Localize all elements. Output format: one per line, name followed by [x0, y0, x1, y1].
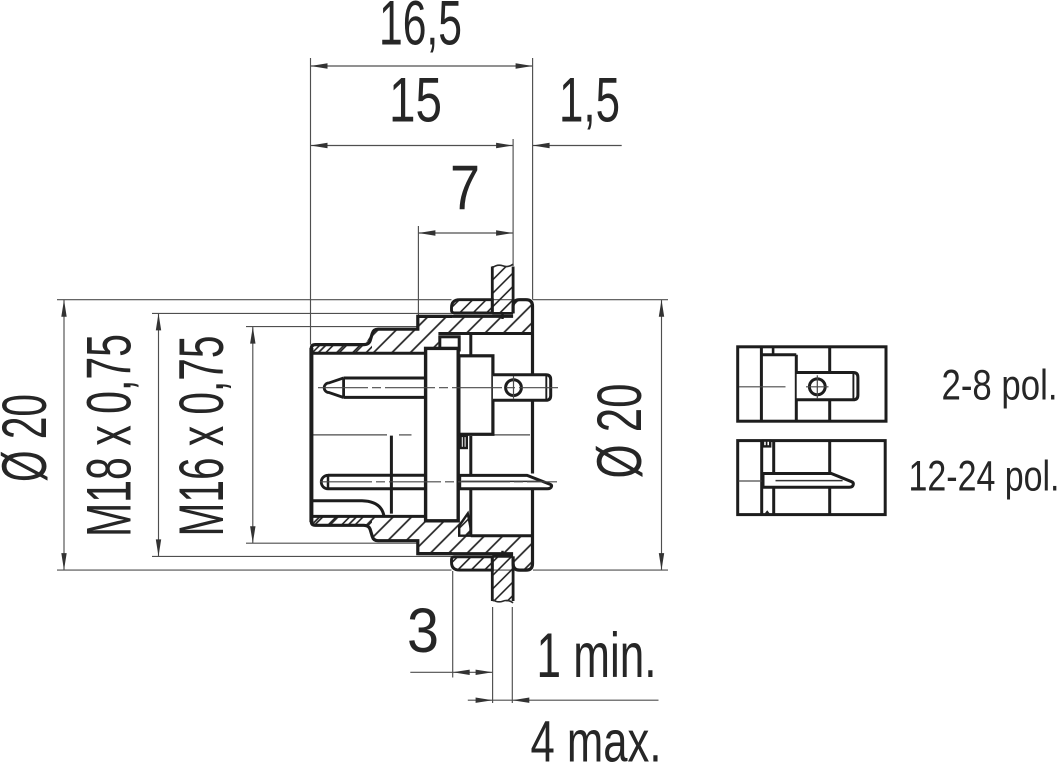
svg-text:1,5: 1,5: [559, 66, 620, 136]
svg-text:3: 3: [407, 596, 439, 666]
svg-text:7: 7: [450, 154, 480, 224]
svg-text:M16 x 0,75: M16 x 0,75: [167, 336, 237, 537]
svg-text:12-24 pol.: 12-24 pol.: [909, 453, 1057, 500]
svg-text:4 max.: 4 max.: [531, 710, 662, 762]
svg-text:1 min.: 1 min.: [537, 621, 657, 691]
svg-text:16,5: 16,5: [379, 0, 462, 59]
svg-text:Ø 20: Ø 20: [0, 394, 60, 482]
svg-text:Ø 20: Ø 20: [585, 384, 655, 479]
svg-text:2-8 pol.: 2-8 pol.: [942, 362, 1057, 409]
svg-text:M18 x 0,75: M18 x 0,75: [75, 334, 145, 537]
svg-text:15: 15: [389, 66, 442, 136]
